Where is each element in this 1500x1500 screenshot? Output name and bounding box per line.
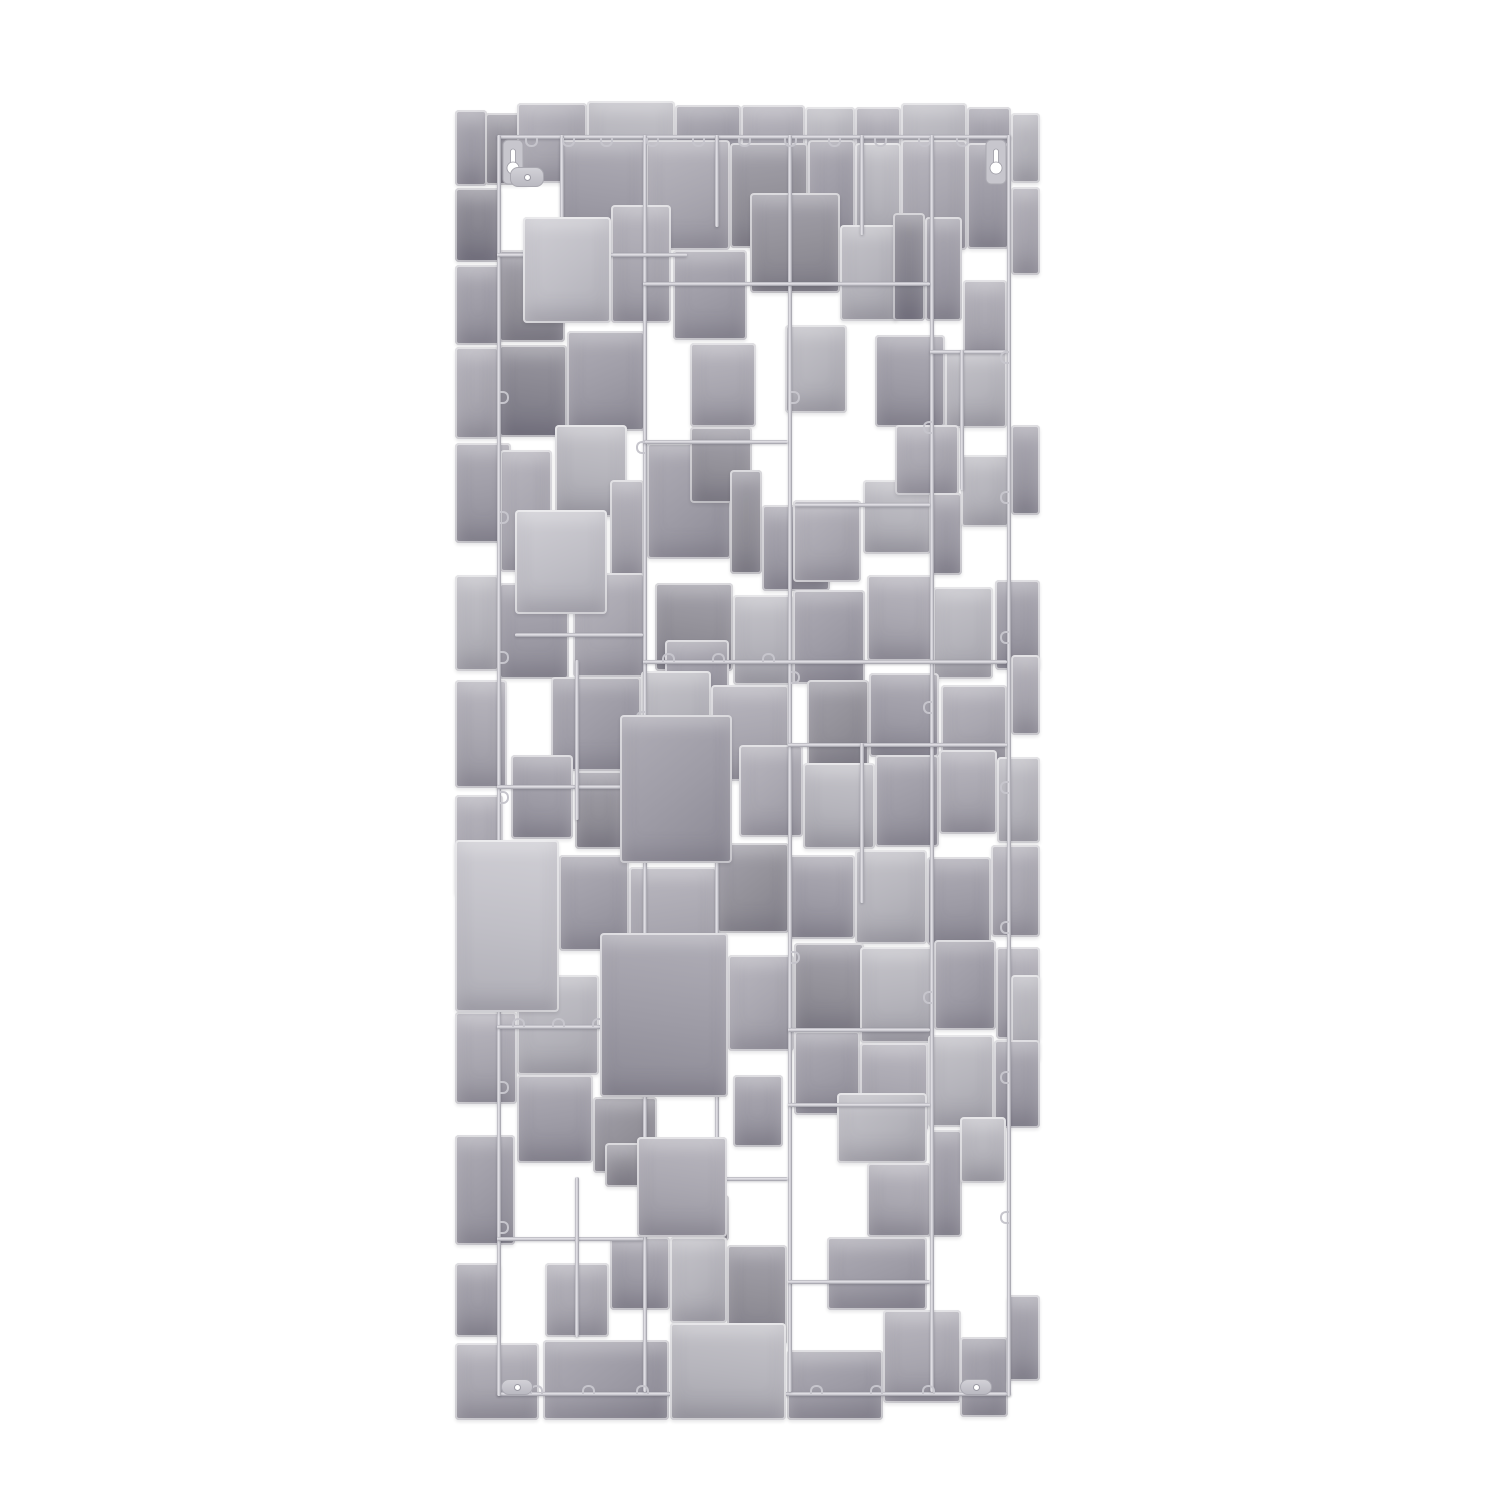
metal-plate	[455, 265, 501, 345]
wire-rod-vertical	[860, 743, 864, 903]
metal-plate	[733, 1075, 783, 1147]
metal-plate	[499, 345, 567, 437]
wire-rod-horizontal	[515, 633, 643, 637]
metal-plate	[793, 500, 861, 582]
metal-plate	[567, 331, 645, 431]
metal-plate	[515, 510, 607, 614]
wire-rod-horizontal	[643, 660, 1007, 664]
metal-plate	[690, 343, 756, 427]
wire-clip	[923, 421, 932, 434]
metal-plate	[933, 587, 993, 679]
metal-plate	[511, 755, 573, 839]
wire-clip	[636, 441, 645, 454]
metal-plate	[575, 771, 623, 849]
metal-plate	[1011, 655, 1040, 735]
wire-rod-horizontal	[643, 282, 930, 286]
wire-clip	[636, 1385, 649, 1394]
metal-plate	[670, 1237, 727, 1323]
wire-clip	[1000, 1071, 1009, 1084]
wire-clip	[712, 653, 725, 662]
metal-plate	[840, 225, 898, 321]
metal-plate	[733, 595, 793, 685]
wire-rod-horizontal	[795, 503, 930, 507]
wire-clip	[552, 1018, 565, 1027]
wire-clip	[1000, 921, 1009, 934]
metal-plate	[945, 350, 1007, 428]
product-photo	[0, 0, 1500, 1500]
metal-plate	[517, 1075, 593, 1163]
wire-rod-horizontal	[643, 440, 788, 444]
wall-art-panel	[455, 95, 1040, 1420]
metal-plate	[1007, 1295, 1040, 1381]
wire-rod-vertical	[575, 1177, 579, 1337]
tab-hole	[514, 1384, 521, 1391]
wire-clip	[1000, 781, 1009, 794]
metal-plate	[455, 1263, 501, 1337]
metal-plate	[1011, 187, 1040, 275]
metal-plate	[991, 845, 1040, 937]
metal-plate	[960, 1117, 1006, 1183]
wire-clip	[1000, 351, 1009, 364]
mounting-tab	[960, 1379, 992, 1395]
metal-plate	[927, 857, 991, 945]
metal-plate	[620, 715, 732, 863]
metal-plate	[455, 575, 499, 671]
metal-plate	[934, 940, 996, 1030]
metal-plate	[739, 745, 803, 837]
wire-rod-vertical	[860, 135, 864, 235]
wire-rod-vertical	[930, 135, 934, 1392]
metal-plate	[994, 1040, 1040, 1128]
wire-clip	[923, 991, 932, 1004]
wire-clip	[1000, 491, 1009, 504]
wire-clip	[500, 791, 509, 804]
wire-rod-vertical	[1007, 135, 1011, 1396]
metal-plate	[939, 750, 997, 834]
mounting-tab	[501, 1379, 533, 1395]
wire-clip	[870, 1385, 883, 1394]
wire-clip	[662, 653, 675, 662]
metal-plate	[793, 590, 865, 684]
wire-clip	[512, 1018, 525, 1027]
metal-plate	[730, 470, 762, 574]
wire-clip	[923, 701, 932, 714]
wire-rod-horizontal	[788, 1028, 930, 1032]
metal-plate	[455, 110, 487, 186]
metal-plate	[637, 1137, 727, 1237]
metal-plate	[1011, 113, 1040, 183]
metal-plate	[867, 1163, 931, 1237]
metal-plate	[728, 955, 794, 1051]
metal-plate	[895, 425, 959, 495]
metal-plate	[670, 1323, 786, 1420]
metal-plate	[963, 280, 1007, 360]
wire-rod-horizontal	[788, 1280, 930, 1284]
wire-clip	[810, 1385, 823, 1394]
wire-clip	[922, 1385, 935, 1394]
wire-rod-horizontal	[788, 1103, 930, 1107]
metal-plate	[930, 493, 962, 575]
wire-rod-vertical	[715, 135, 719, 227]
tab-hole	[524, 174, 531, 181]
metal-plate	[787, 1350, 883, 1420]
metal-plate	[803, 763, 875, 849]
mounting-tab	[510, 167, 544, 187]
wire-rod-horizontal	[788, 743, 1007, 747]
metal-plate	[610, 480, 644, 578]
metal-plate	[827, 1237, 927, 1310]
metal-plate	[928, 1035, 994, 1127]
wire-clip	[1000, 631, 1009, 644]
metal-plate	[610, 1237, 670, 1310]
metal-plate	[875, 335, 945, 427]
metal-plate	[930, 1130, 962, 1237]
wire-rod-vertical	[788, 135, 792, 1392]
metal-plate	[867, 575, 933, 661]
metal-plate	[789, 855, 855, 939]
metal-plate	[1011, 425, 1040, 515]
metal-plate	[543, 1340, 669, 1420]
metal-plate	[794, 943, 864, 1031]
metal-plate	[997, 757, 1040, 843]
metal-plate	[455, 347, 499, 439]
wire-clip	[1000, 1211, 1009, 1224]
wire-clip	[582, 1385, 595, 1394]
wire-clip	[762, 653, 775, 662]
metal-plate	[455, 188, 501, 262]
keyhole-hanger	[985, 139, 1007, 190]
metal-plate	[673, 250, 747, 340]
wire-rod-horizontal	[930, 350, 1007, 354]
metal-plate	[893, 213, 925, 321]
metal-plate	[600, 933, 728, 1097]
wire-rod-vertical	[497, 135, 501, 1396]
wire-rod-vertical	[575, 660, 579, 820]
metal-plate	[960, 1337, 1008, 1417]
wire-rod-horizontal	[497, 1237, 643, 1241]
wire-rod-vertical	[960, 350, 964, 490]
metal-plate	[855, 850, 927, 944]
metal-plate	[455, 840, 559, 1012]
tab-hole	[973, 1384, 980, 1391]
metal-plate	[611, 205, 671, 323]
metal-plate	[523, 217, 611, 323]
metal-plate	[750, 193, 840, 293]
